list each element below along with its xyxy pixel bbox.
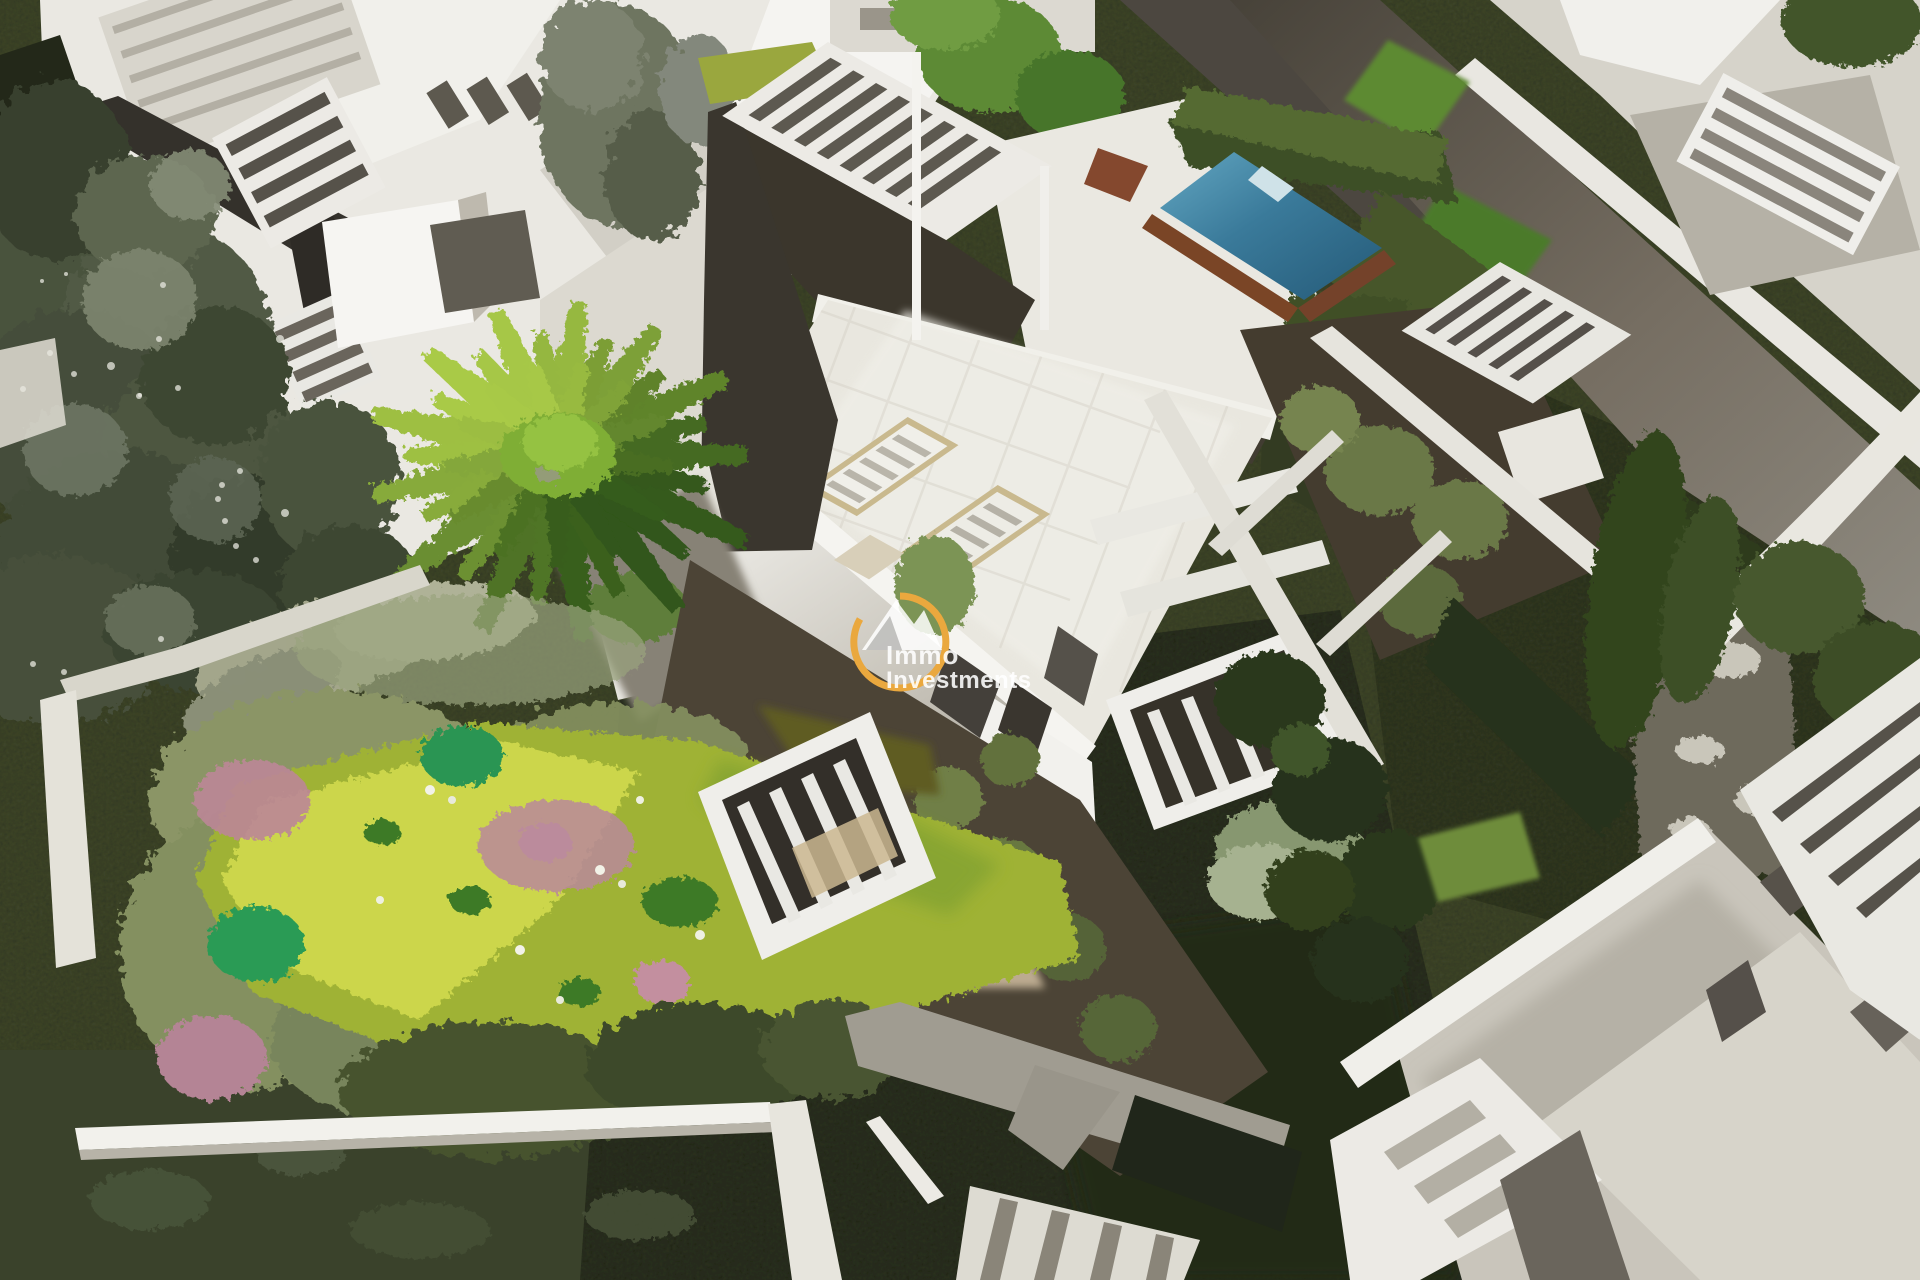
svg-text:Immo: Immo [886, 640, 959, 670]
svg-text:Investments: Investments [886, 667, 1032, 694]
